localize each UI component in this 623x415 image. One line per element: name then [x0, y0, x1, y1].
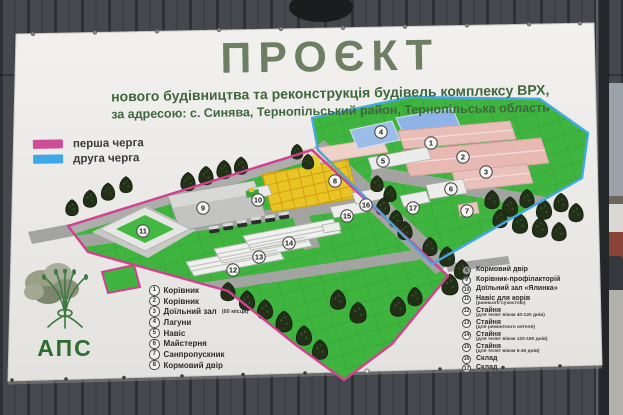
list-item: 9Корівник-профілакторій — [462, 276, 560, 286]
item-number: 11 — [462, 295, 471, 304]
svg-text:1: 1 — [429, 139, 433, 148]
map-marker-1: 1 — [425, 137, 437, 149]
svg-text:10: 10 — [254, 196, 262, 205]
map-marker-11: 11 — [137, 225, 149, 237]
list-item: 1Корівник — [149, 285, 248, 296]
list-item: 13Стайня(для ремонтного нетеля) — [462, 319, 560, 331]
map-marker-17: 17 — [407, 202, 419, 214]
company-logo: АПС — [30, 269, 100, 362]
svg-text:16: 16 — [362, 201, 370, 210]
svg-text:12: 12 — [229, 266, 237, 275]
wheat-sheaf-icon — [36, 269, 94, 329]
item-number: 10 — [462, 285, 471, 294]
svg-text:15: 15 — [343, 212, 351, 221]
list-item: 2Корівник — [149, 296, 248, 307]
list-item: 17Склад — [462, 364, 560, 374]
item-number: 13 — [462, 319, 471, 328]
map-marker-8: 8 — [329, 175, 341, 187]
map-marker-10: 10 — [252, 194, 264, 206]
list-item: 11Навіс для корів(раннього сухостою) — [462, 295, 560, 307]
building-list-right: 8Кормовий двір 9Корівник-профілакторій 1… — [462, 266, 560, 374]
svg-text:5: 5 — [381, 157, 385, 166]
item-number: 7 — [149, 349, 160, 360]
building-list-left: 1Корівник 2Корівник 3Доїльний зал(60 міс… — [149, 285, 248, 371]
phase2-label: друга черга — [73, 152, 139, 165]
list-item: 8Кормовий двір — [462, 266, 560, 276]
list-item: 5Навіс — [149, 328, 248, 339]
svg-text:3: 3 — [484, 168, 488, 177]
map-marker-3: 3 — [480, 166, 492, 178]
svg-text:8: 8 — [333, 177, 337, 186]
item-number: 3 — [149, 306, 160, 317]
legend-row-phase2: друга черга — [33, 150, 144, 167]
list-item: 8Кормовий двір — [149, 360, 248, 371]
phase1-label: перша черга — [73, 137, 144, 150]
list-item: 16Склад — [462, 355, 560, 365]
map-marker-13: 13 — [253, 251, 265, 263]
map-marker-5: 5 — [377, 155, 389, 167]
list-item: 15Стайня(для телят віком 5-40 днів) — [462, 343, 560, 355]
map-marker-12: 12 — [227, 264, 239, 276]
svg-text:13: 13 — [255, 253, 263, 262]
item-number: 5 — [149, 328, 160, 339]
phase-legend: перша черга друга черга — [33, 135, 144, 167]
item-number: 15 — [462, 343, 471, 352]
poster-title: ПРОЄКТ — [54, 32, 605, 84]
map-marker-14: 14 — [283, 237, 295, 249]
item-number: 2 — [149, 296, 160, 307]
phase2-color-swatch — [33, 154, 63, 163]
item-number: 17 — [462, 364, 471, 373]
legend-row-phase1: перша черга — [33, 135, 144, 152]
phase1-color-swatch — [33, 139, 63, 148]
item-number: 8 — [462, 266, 471, 275]
list-item: 14Стайня(для телят віком 120-180 днів) — [462, 331, 560, 343]
list-item: 12Стайня(для телят віком 40-120 днів) — [462, 307, 560, 319]
svg-text:11: 11 — [139, 227, 147, 236]
map-marker-4: 4 — [375, 126, 387, 138]
list-item: 10Доїльний зал «Ялинка» — [462, 285, 560, 295]
svg-text:17: 17 — [409, 204, 417, 213]
banner-header: ПРОЄКТ нового будівництва та реконструкц… — [54, 32, 605, 123]
svg-text:14: 14 — [285, 239, 294, 248]
list-item: 6Майстерня — [149, 338, 248, 349]
list-item: 4Лагуни — [149, 317, 248, 328]
item-number: 1 — [149, 285, 160, 296]
svg-text:9: 9 — [201, 204, 205, 213]
list-item: 7Санпропускник — [149, 349, 248, 360]
map-marker-6: 6 — [445, 183, 457, 195]
item-number: 8 — [149, 360, 160, 371]
map-marker-15: 15 — [341, 210, 353, 222]
map-marker-7: 7 — [461, 205, 473, 217]
map-marker-16: 16 — [360, 199, 372, 211]
item-number: 4 — [149, 317, 160, 328]
map-marker-9: 9 — [197, 202, 209, 214]
company-logo-text: АПС — [30, 335, 100, 362]
item-number: 6 — [149, 339, 160, 350]
svg-text:6: 6 — [449, 185, 453, 194]
item-number: 12 — [462, 307, 471, 316]
svg-text:7: 7 — [465, 207, 469, 216]
map-marker-2: 2 — [457, 151, 469, 163]
item-number: 9 — [462, 276, 471, 285]
item-number: 16 — [462, 355, 471, 364]
photo-of-project-banner: 1 2 3 4 5 6 7 8 9 10 11 12 13 14 15 16 1… — [0, 0, 623, 415]
svg-text:2: 2 — [461, 153, 465, 162]
item-number: 14 — [462, 331, 471, 340]
list-item: 3Доїльний зал(60 місць) — [149, 306, 248, 317]
